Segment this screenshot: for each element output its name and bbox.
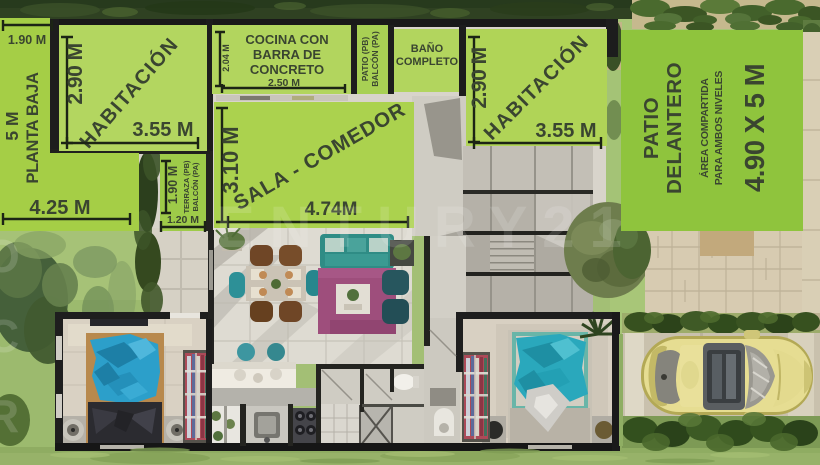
svg-text:COCINA CON: COCINA CON [245, 32, 328, 47]
svg-text:2.90 M: 2.90 M [64, 43, 87, 104]
svg-text:1.90 M: 1.90 M [8, 33, 46, 47]
svg-text:ENTURY21: ENTURY21 [216, 195, 637, 260]
svg-text:R: R [0, 390, 19, 442]
svg-text:PATIO: PATIO [640, 97, 663, 159]
svg-text:5 M: 5 M [2, 111, 22, 140]
svg-text:O: O [0, 230, 20, 282]
svg-text:PARA AMBOS NIVELES: PARA AMBOS NIVELES [713, 71, 725, 186]
svg-text:1.20 M: 1.20 M [167, 214, 199, 226]
svg-text:PATIO (PB): PATIO (PB) [360, 37, 370, 82]
svg-text:DELANTERO: DELANTERO [663, 62, 686, 194]
svg-text:CONCRETO: CONCRETO [250, 62, 324, 77]
svg-text:BAÑO: BAÑO [411, 42, 444, 55]
svg-text:2.04 M: 2.04 M [221, 44, 231, 72]
svg-text:BARRA DE: BARRA DE [253, 47, 321, 62]
svg-text:TERRAZA (PB): TERRAZA (PB) [182, 160, 191, 214]
svg-text:C: C [0, 310, 19, 362]
svg-text:4.25 M: 4.25 M [29, 197, 90, 219]
svg-text:BALCÓN (PA): BALCÓN (PA) [369, 31, 380, 87]
svg-text:3.10 M: 3.10 M [218, 126, 243, 193]
svg-text:3.55 M: 3.55 M [132, 119, 193, 141]
svg-text:BALCÓN (PA): BALCÓN (PA) [191, 162, 200, 212]
svg-text:PLANTA BAJA: PLANTA BAJA [24, 72, 42, 184]
svg-text:COMPLETO: COMPLETO [396, 56, 459, 68]
svg-text:3.55 M: 3.55 M [535, 120, 596, 142]
svg-text:4.90 X 5 M: 4.90 X 5 M [739, 64, 770, 192]
svg-text:ÁREA COMPARTIDA: ÁREA COMPARTIDA [698, 78, 711, 178]
svg-text:1.90 M: 1.90 M [166, 166, 180, 204]
svg-text:2.90 M: 2.90 M [468, 47, 491, 108]
